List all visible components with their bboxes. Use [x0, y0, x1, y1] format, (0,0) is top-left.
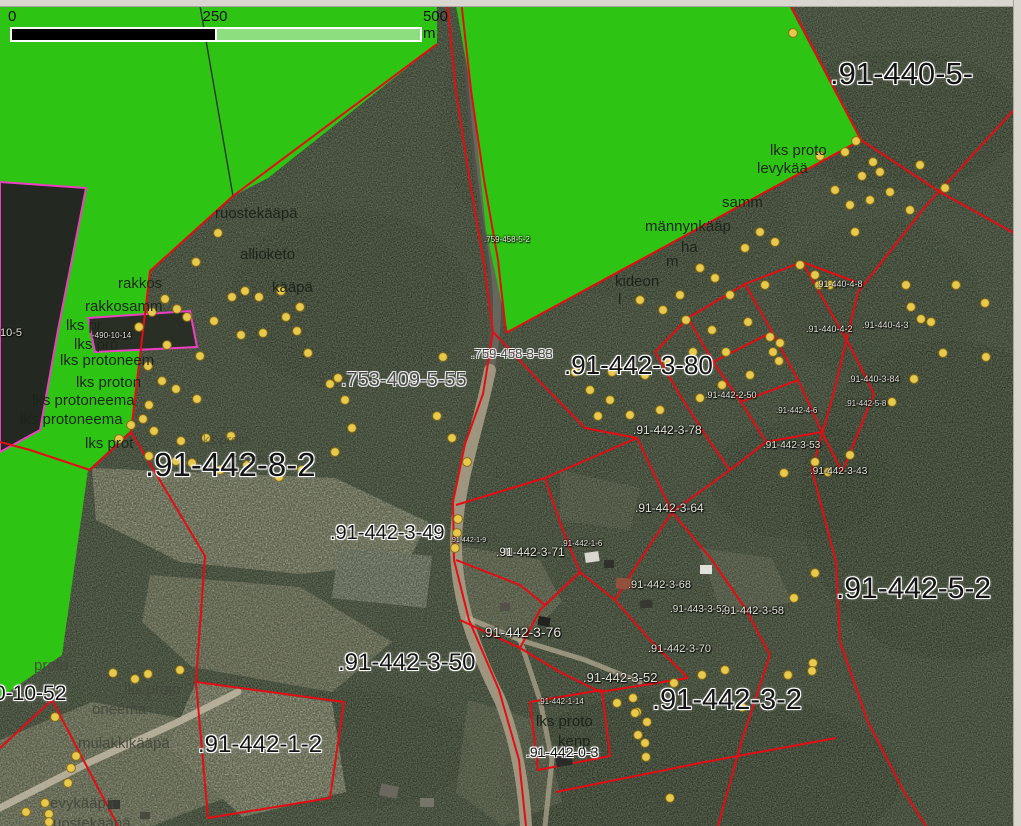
observation-point[interactable]: [193, 395, 202, 404]
observation-point[interactable]: [811, 458, 820, 467]
observation-point[interactable]: [45, 818, 54, 826]
observation-point[interactable]: [176, 666, 185, 675]
observation-point[interactable]: [876, 168, 885, 177]
observation-point[interactable]: [852, 137, 861, 146]
observation-point[interactable]: [439, 353, 448, 362]
observation-point[interactable]: [815, 281, 824, 290]
observation-point[interactable]: [790, 594, 799, 603]
observation-point[interactable]: [941, 184, 950, 193]
observation-point[interactable]: [144, 670, 153, 679]
observation-point[interactable]: [227, 432, 236, 441]
observation-point[interactable]: [689, 348, 698, 357]
observation-point[interactable]: [769, 348, 778, 357]
observation-point[interactable]: [109, 669, 118, 678]
observation-point[interactable]: [656, 406, 665, 415]
observation-point[interactable]: [237, 331, 246, 340]
building: [140, 812, 150, 819]
observation-point[interactable]: [766, 333, 775, 342]
observation-point[interactable]: [643, 718, 652, 727]
observation-point[interactable]: [676, 291, 685, 300]
observation-point[interactable]: [916, 161, 925, 170]
observation-point[interactable]: [808, 667, 817, 676]
observation-point[interactable]: [202, 434, 211, 443]
observation-point[interactable]: [927, 318, 936, 327]
observation-point[interactable]: [331, 448, 340, 457]
observation-point[interactable]: [594, 412, 603, 421]
observation-point[interactable]: [666, 794, 675, 803]
observation-point[interactable]: [150, 427, 159, 436]
scale-tick-500m: 500 m: [423, 8, 448, 42]
observation-point[interactable]: [216, 466, 225, 475]
observation-point[interactable]: [172, 457, 181, 466]
observation-point[interactable]: [670, 679, 679, 688]
observation-point[interactable]: [243, 461, 252, 470]
observation-point[interactable]: [910, 375, 919, 384]
observation-point[interactable]: [841, 148, 850, 157]
observation-point[interactable]: [158, 377, 167, 386]
observation-point[interactable]: [809, 659, 818, 668]
building: [503, 548, 512, 555]
window-top-edge: [0, 0, 1021, 7]
observation-point[interactable]: [606, 396, 615, 405]
building: [108, 800, 120, 809]
observation-point[interactable]: [115, 435, 124, 444]
building: [604, 560, 614, 568]
observation-point[interactable]: [776, 339, 785, 348]
observation-point[interactable]: [277, 287, 286, 296]
scale-bar-filled-segment: [10, 27, 217, 42]
building: [500, 603, 510, 611]
observation-point[interactable]: [811, 271, 820, 280]
observation-point[interactable]: [771, 238, 780, 247]
scale-bar: 0 250 500 m: [0, 0, 460, 50]
scale-bar-empty-segment: [215, 27, 422, 42]
observation-point[interactable]: [275, 473, 284, 482]
observation-point[interactable]: [902, 281, 911, 290]
observation-point[interactable]: [866, 196, 875, 205]
observation-point[interactable]: [629, 694, 638, 703]
observation-point[interactable]: [571, 368, 580, 377]
observation-point[interactable]: [796, 261, 805, 270]
scale-tick-250: 250: [202, 8, 227, 25]
observation-point[interactable]: [641, 371, 650, 380]
observation-point[interactable]: [641, 739, 650, 748]
observation-point[interactable]: [780, 469, 789, 478]
observation-point[interactable]: [789, 29, 798, 38]
observation-point[interactable]: [241, 287, 250, 296]
observation-point[interactable]: [282, 313, 291, 322]
observation-point[interactable]: [192, 258, 201, 267]
observation-point[interactable]: [888, 398, 897, 407]
observation-point[interactable]: [586, 386, 595, 395]
observation-point[interactable]: [433, 412, 442, 421]
observation-point[interactable]: [64, 779, 73, 788]
building: [640, 599, 653, 608]
observation-point[interactable]: [196, 352, 205, 361]
observation-point[interactable]: [816, 152, 825, 161]
observation-point[interactable]: [448, 434, 457, 443]
observation-point[interactable]: [982, 353, 991, 362]
observation-point[interactable]: [45, 810, 54, 819]
observation-point[interactable]: [721, 666, 730, 675]
observation-point[interactable]: [334, 374, 343, 383]
observation-point[interactable]: [173, 305, 182, 314]
observation-point[interactable]: [348, 424, 357, 433]
observation-point[interactable]: [711, 274, 720, 283]
observation-point[interactable]: [784, 671, 793, 680]
observation-point[interactable]: [906, 206, 915, 215]
observation-point[interactable]: [139, 415, 148, 424]
observation-point[interactable]: [127, 421, 136, 430]
observation-point[interactable]: [886, 188, 895, 197]
observation-point[interactable]: [756, 228, 765, 237]
window-scrollbar-edge[interactable]: [1013, 0, 1021, 826]
observation-point[interactable]: [163, 341, 172, 350]
observation-point[interactable]: [626, 411, 635, 420]
observation-point[interactable]: [664, 358, 673, 367]
building: [616, 577, 633, 589]
scale-tick-0: 0: [8, 8, 16, 25]
observation-point[interactable]: [453, 529, 462, 538]
building: [584, 551, 599, 563]
observation-point[interactable]: [131, 675, 140, 684]
observation-point[interactable]: [917, 315, 926, 324]
observation-point[interactable]: [144, 362, 153, 371]
observation-point[interactable]: [907, 303, 916, 312]
observation-point[interactable]: [708, 326, 717, 335]
observation-point[interactable]: [698, 671, 707, 680]
observation-point[interactable]: [761, 281, 770, 290]
observation-point[interactable]: [939, 349, 948, 358]
observation-point[interactable]: [259, 329, 268, 338]
observation-point[interactable]: [145, 401, 154, 410]
observation-point[interactable]: [326, 380, 335, 389]
observation-point[interactable]: [741, 244, 750, 253]
observation-point[interactable]: [296, 303, 305, 312]
observation-point[interactable]: [608, 368, 617, 377]
observation-point[interactable]: [177, 437, 186, 446]
building: [420, 798, 434, 807]
observation-point[interactable]: [298, 466, 307, 475]
observation-point[interactable]: [722, 348, 731, 357]
observation-point[interactable]: [824, 468, 833, 477]
observation-point[interactable]: [826, 281, 835, 290]
observation-point[interactable]: [145, 452, 154, 461]
observation-point[interactable]: [51, 713, 60, 722]
observation-point[interactable]: [846, 201, 855, 210]
building: [700, 565, 712, 574]
observation-point[interactable]: [636, 296, 645, 305]
observation-point[interactable]: [858, 172, 867, 181]
observation-point[interactable]: [188, 459, 197, 468]
observation-point[interactable]: [811, 569, 820, 578]
observation-point[interactable]: [304, 349, 313, 358]
observation-point[interactable]: [135, 323, 144, 332]
observation-point[interactable]: [718, 381, 727, 390]
observation-point[interactable]: [172, 385, 181, 394]
observation-point[interactable]: [41, 799, 50, 808]
map-canvas[interactable]: [0, 0, 1021, 826]
observation-point[interactable]: [463, 458, 472, 467]
observation-point[interactable]: [454, 515, 463, 524]
observation-point[interactable]: [22, 808, 31, 817]
map-viewport[interactable]: .91-440-5-.91-442-8-2.91-442-5-2.91-442-…: [0, 0, 1021, 826]
observation-point[interactable]: [613, 699, 622, 708]
observation-point[interactable]: [183, 313, 192, 322]
observation-point[interactable]: [210, 317, 219, 326]
observation-point[interactable]: [659, 306, 668, 315]
observation-point[interactable]: [851, 228, 860, 237]
observation-point[interactable]: [746, 371, 755, 380]
observation-point[interactable]: [744, 318, 753, 327]
observation-point[interactable]: [341, 396, 350, 405]
observation-point[interactable]: [161, 295, 170, 304]
observation-point[interactable]: [67, 764, 76, 773]
observation-point[interactable]: [228, 293, 237, 302]
observation-point[interactable]: [726, 291, 735, 300]
observation-point[interactable]: [846, 451, 855, 460]
observation-point[interactable]: [775, 357, 784, 366]
observation-point[interactable]: [696, 264, 705, 273]
observation-point[interactable]: [451, 544, 460, 553]
observation-point[interactable]: [981, 299, 990, 308]
observation-point[interactable]: [831, 186, 840, 195]
observation-point[interactable]: [682, 316, 691, 325]
observation-point[interactable]: [738, 703, 747, 712]
observation-point[interactable]: [255, 293, 264, 302]
observation-point[interactable]: [642, 753, 651, 762]
observation-point[interactable]: [148, 308, 157, 317]
observation-point[interactable]: [634, 731, 643, 740]
observation-point[interactable]: [293, 327, 302, 336]
observation-point[interactable]: [72, 752, 81, 761]
observation-point[interactable]: [696, 394, 705, 403]
observation-point[interactable]: [214, 229, 223, 238]
observation-point[interactable]: [869, 158, 878, 167]
observation-point[interactable]: [631, 709, 640, 718]
observation-point[interactable]: [952, 281, 961, 290]
